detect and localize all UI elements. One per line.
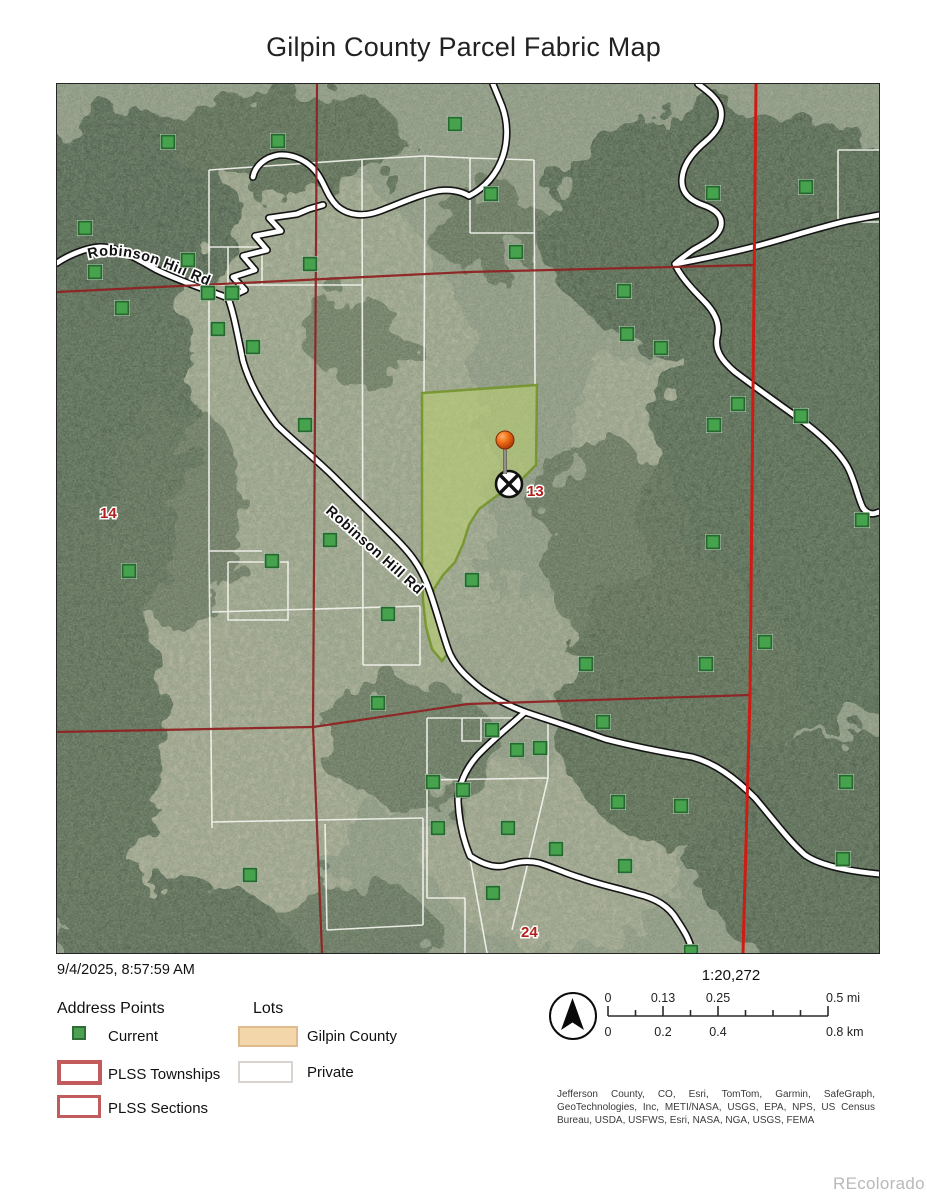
legend-header-address-points: Address Points bbox=[57, 1000, 165, 1018]
address-point-square bbox=[89, 266, 102, 279]
address-point-square bbox=[449, 118, 462, 131]
legend-item-current: Current bbox=[108, 1028, 158, 1045]
address-point-square bbox=[511, 744, 524, 757]
address-point-square bbox=[510, 246, 523, 259]
address-point-square bbox=[612, 796, 625, 809]
address-point-square bbox=[427, 776, 440, 789]
scale-km-label: 0.2 bbox=[654, 1025, 671, 1039]
address-point-square bbox=[272, 135, 285, 148]
address-point-square bbox=[299, 419, 312, 432]
scale-km-label: 0.8 km bbox=[826, 1025, 864, 1039]
address-point-square bbox=[707, 536, 720, 549]
address-point-square bbox=[487, 887, 500, 900]
address-point-square bbox=[621, 328, 634, 341]
address-point-square bbox=[619, 860, 632, 873]
map-svg: Robinson Hill Rd Robinson Hill Rd 141324 bbox=[57, 84, 879, 953]
address-point-square bbox=[79, 222, 92, 235]
crossed-circle-marker bbox=[496, 471, 522, 497]
legend-header-lots: Lots bbox=[253, 1000, 283, 1018]
address-point-square bbox=[580, 658, 593, 671]
address-point-square bbox=[226, 287, 239, 300]
legend-swatch-gilpin-county-icon bbox=[238, 1026, 298, 1047]
address-point-square bbox=[116, 302, 129, 315]
address-point-square bbox=[618, 285, 631, 298]
address-point-square bbox=[707, 187, 720, 200]
page-title: Gilpin County Parcel Fabric Map bbox=[0, 32, 927, 63]
legend-item-plss-townships: PLSS Townships bbox=[108, 1066, 220, 1083]
scale-mi-label: 0.25 bbox=[706, 991, 730, 1005]
address-point-square bbox=[655, 342, 668, 355]
address-point-square bbox=[457, 784, 470, 797]
legend-item-private: Private bbox=[307, 1064, 354, 1081]
address-point-square bbox=[685, 946, 698, 954]
scale-bar: 00.130.250.5 mi00.20.40.8 km bbox=[595, 988, 895, 1046]
address-point-square bbox=[466, 574, 479, 587]
address-point-square bbox=[202, 287, 215, 300]
address-point-square bbox=[675, 800, 688, 813]
address-point-square bbox=[382, 608, 395, 621]
address-point-square bbox=[372, 697, 385, 710]
watermark: REcolorado bbox=[833, 1174, 925, 1194]
address-point-square bbox=[432, 822, 445, 835]
north-arrow-icon bbox=[549, 992, 597, 1040]
scale-km-label: 0.4 bbox=[709, 1025, 726, 1039]
address-point-square bbox=[247, 341, 260, 354]
address-point-square bbox=[486, 724, 499, 737]
address-point-square bbox=[856, 514, 869, 527]
legend-item-gilpin-county: Gilpin County bbox=[307, 1028, 397, 1045]
map-canvas[interactable]: Robinson Hill Rd Robinson Hill Rd 141324 bbox=[56, 83, 880, 954]
legend-swatch-current-green-square-icon bbox=[72, 1026, 86, 1040]
address-point-square bbox=[550, 843, 563, 856]
address-point-square bbox=[700, 658, 713, 671]
address-point-square bbox=[244, 869, 257, 882]
address-point-square bbox=[324, 534, 337, 547]
address-point-square bbox=[534, 742, 547, 755]
address-point-square bbox=[304, 258, 317, 271]
address-point-square bbox=[732, 398, 745, 411]
scale-mi-label: 0.13 bbox=[651, 991, 675, 1005]
scale-km-label: 0 bbox=[605, 1025, 612, 1039]
timestamp: 9/4/2025, 8:57:59 AM bbox=[57, 962, 195, 978]
address-point-square bbox=[840, 776, 853, 789]
address-point-square bbox=[837, 853, 850, 866]
address-point-square bbox=[485, 188, 498, 201]
address-point-square bbox=[502, 822, 515, 835]
section-number-label: 24 bbox=[521, 924, 538, 941]
legend-swatch-plss-townships-icon bbox=[57, 1060, 102, 1085]
address-point-square bbox=[597, 716, 610, 729]
address-point-square bbox=[759, 636, 772, 649]
attribution: Jefferson County, CO, Esri, TomTom, Garm… bbox=[557, 1088, 875, 1127]
address-point-square bbox=[800, 181, 813, 194]
scale-ratio: 1:20,272 bbox=[631, 967, 831, 984]
address-point-square bbox=[795, 410, 808, 423]
address-point-square bbox=[266, 555, 279, 568]
section-number-label: 13 bbox=[527, 483, 544, 500]
legend-swatch-plss-sections-icon bbox=[57, 1095, 101, 1118]
address-point-square bbox=[708, 419, 721, 432]
section-number-label: 14 bbox=[100, 505, 117, 522]
address-point-square bbox=[212, 323, 225, 336]
legend-item-plss-sections: PLSS Sections bbox=[108, 1100, 208, 1117]
legend-swatch-private-icon bbox=[238, 1061, 293, 1083]
address-point-square bbox=[182, 254, 195, 267]
scale-mi-label: 0 bbox=[605, 991, 612, 1005]
address-point-square bbox=[162, 136, 175, 149]
scale-mi-label: 0.5 mi bbox=[826, 991, 860, 1005]
address-point-square bbox=[123, 565, 136, 578]
